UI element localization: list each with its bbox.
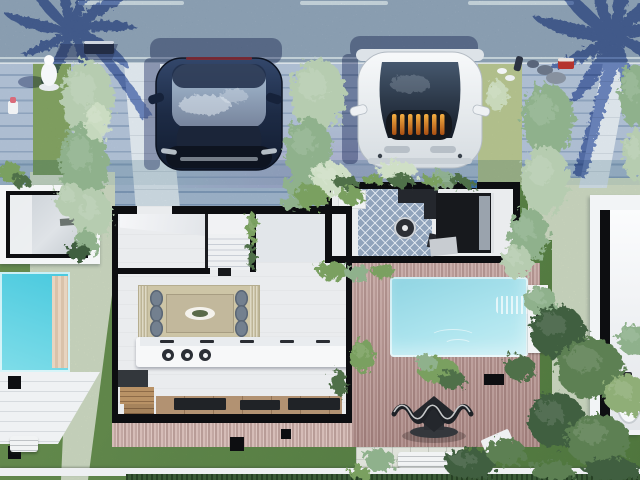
left-wall	[112, 206, 118, 422]
garden-bench	[398, 452, 456, 468]
dining-table	[166, 294, 234, 333]
rear-wall	[112, 414, 352, 423]
kitchen-cabinet-dark	[118, 370, 148, 387]
bench-cushion	[240, 400, 280, 410]
island-basin	[162, 349, 174, 361]
den-rug	[429, 237, 458, 257]
bed-pillows	[479, 196, 490, 250]
bath-fixture	[620, 372, 632, 379]
rug-fringe	[250, 286, 259, 339]
kitchen-island	[136, 337, 352, 367]
pavement-light-glow	[140, 118, 500, 188]
glass-rack	[316, 340, 330, 343]
main-pool	[390, 277, 528, 357]
left-neighbor-curtain	[10, 195, 32, 254]
planter-box	[281, 429, 291, 439]
lane-dash	[468, 1, 574, 5]
planter-box	[8, 376, 21, 389]
dining-chair	[150, 320, 163, 337]
bathtub	[616, 380, 640, 424]
island-basin	[181, 349, 193, 361]
stair-landing	[208, 214, 252, 234]
left-neighbor-bench	[10, 436, 38, 452]
bench-cushion	[288, 398, 340, 410]
aerial-villa-render	[0, 0, 640, 480]
inner-wall	[112, 268, 210, 274]
pool-ledge-bar	[536, 291, 541, 347]
pool-ripple	[444, 339, 472, 350]
sidewalk-line	[0, 57, 640, 59]
left-neighbor-pool-ledge	[52, 276, 68, 368]
platter-food	[192, 310, 208, 317]
sidewalk-line	[0, 62, 640, 64]
stair-railing	[205, 214, 208, 270]
entry-step	[218, 268, 231, 276]
glass-rack	[240, 340, 254, 343]
glass-rack	[280, 340, 294, 343]
boundary-hedge	[126, 474, 640, 480]
grass-strip-left	[33, 63, 71, 175]
round-coffee-table	[394, 217, 416, 239]
bed-frame-edge	[491, 193, 494, 253]
table-decor	[402, 225, 408, 231]
grass-strip-right	[478, 63, 522, 185]
right-neighbor-skylight-frame	[600, 210, 610, 430]
staircase	[208, 234, 252, 270]
garden-sculpture	[386, 390, 486, 446]
bench-cushion	[174, 398, 226, 410]
kitchen-cabinet-wood	[120, 387, 154, 404]
asphalt-street	[0, 0, 640, 63]
glass-rack	[160, 340, 174, 343]
glass-rack	[200, 340, 214, 343]
platter	[185, 307, 215, 320]
blue-pot	[466, 180, 477, 188]
planter-box	[230, 437, 244, 451]
pool-waterfall	[496, 296, 530, 314]
lane-dash	[300, 1, 388, 5]
deck-planter	[484, 374, 504, 385]
front-wall	[172, 206, 352, 214]
dining-chair	[235, 320, 248, 337]
rug-fringe	[139, 286, 148, 339]
island-basin	[199, 349, 211, 361]
lane-dash	[78, 1, 184, 5]
entry-wall	[250, 206, 256, 272]
